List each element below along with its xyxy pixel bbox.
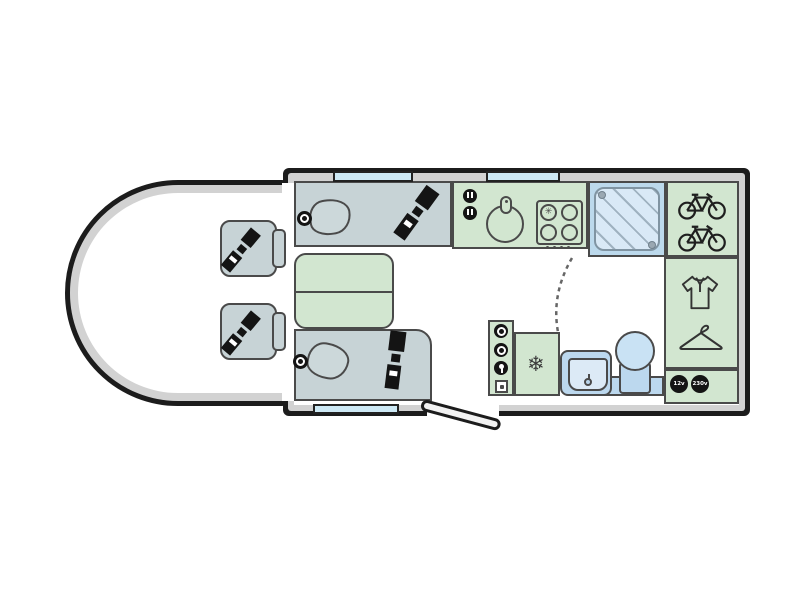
cab-seat-driver-backrest xyxy=(272,229,286,268)
bicycle-icon xyxy=(676,190,728,220)
hob-burner-icon xyxy=(561,204,578,221)
snowflake-icon: ❄ xyxy=(527,352,545,376)
socket-230v-icon: 230v xyxy=(691,375,709,393)
hob-burner-icon xyxy=(561,224,578,241)
cab-outline xyxy=(65,180,303,406)
socket-12v-label: 12v xyxy=(673,381,684,387)
speaker-icon xyxy=(293,354,308,369)
socket-12v-icon: 12v xyxy=(670,375,688,393)
speaker-icon xyxy=(494,324,508,338)
tv-point-icon xyxy=(494,361,508,375)
aerial-socket-icon xyxy=(495,380,508,393)
window-bottom-lounge xyxy=(313,404,399,414)
speaker-icon xyxy=(494,343,508,357)
hanger-icon xyxy=(677,320,725,352)
tap-icon xyxy=(500,196,512,214)
tshirt-icon xyxy=(679,272,721,312)
hob-knob xyxy=(560,246,563,249)
toilet-icon xyxy=(615,331,655,371)
window-top-lounge xyxy=(333,171,413,182)
table-fold-line xyxy=(296,291,392,293)
hob-burner-icon: ✳ xyxy=(540,204,557,221)
hob-knob xyxy=(546,246,549,249)
burner-flame-glyph: ✳ xyxy=(545,208,553,217)
shower-drain-icon xyxy=(648,241,656,249)
window-top-kitchen xyxy=(486,171,560,182)
shower-head-icon xyxy=(598,191,606,199)
hob-knob xyxy=(553,246,556,249)
hob-knob xyxy=(567,246,570,249)
socket-230v-label: 230v xyxy=(692,381,707,387)
socket-230v-icon xyxy=(463,206,477,220)
socket-230v-icon xyxy=(463,189,477,203)
motorhome-floorplan: ✳ 12v 230v xyxy=(0,0,800,600)
hob-burner-icon xyxy=(540,224,557,241)
lounge-table xyxy=(294,253,394,329)
bicycle-icon xyxy=(676,222,728,252)
speaker-icon xyxy=(297,211,312,226)
basin-tap-icon xyxy=(584,378,592,386)
cab-seat-passenger-backrest xyxy=(272,312,286,351)
